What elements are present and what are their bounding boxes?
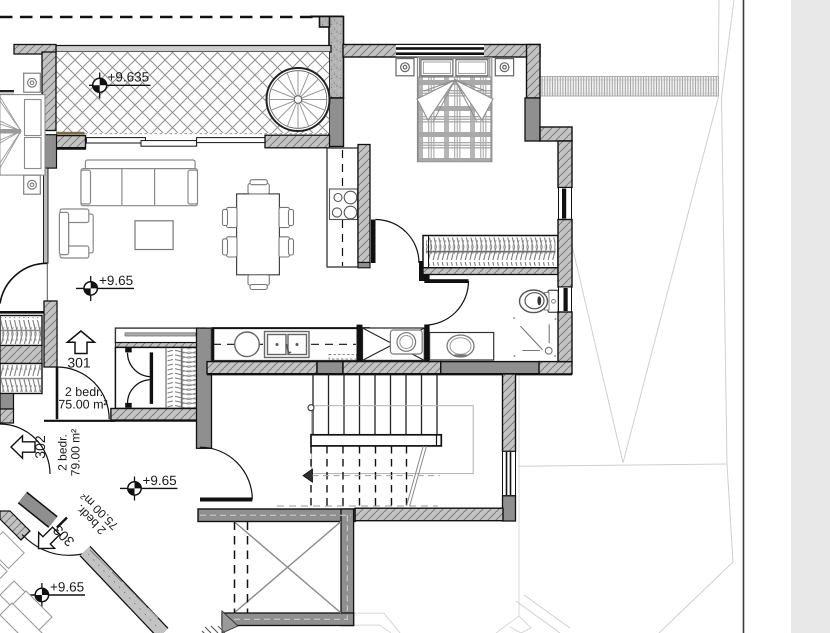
svg-text:301: 301	[67, 355, 91, 371]
svg-text:75.00 m²: 75.00 m²	[58, 398, 107, 412]
svg-text:2 bedr.: 2 bedr.	[56, 434, 70, 471]
svg-text:302: 302	[32, 435, 48, 459]
svg-text:+9.635: +9.635	[108, 70, 150, 85]
svg-text:+9.65: +9.65	[143, 473, 177, 488]
svg-text:+9.65: +9.65	[50, 580, 84, 595]
svg-text:+9.65: +9.65	[99, 273, 133, 288]
svg-text:79.00 m²: 79.00 m²	[69, 429, 83, 476]
